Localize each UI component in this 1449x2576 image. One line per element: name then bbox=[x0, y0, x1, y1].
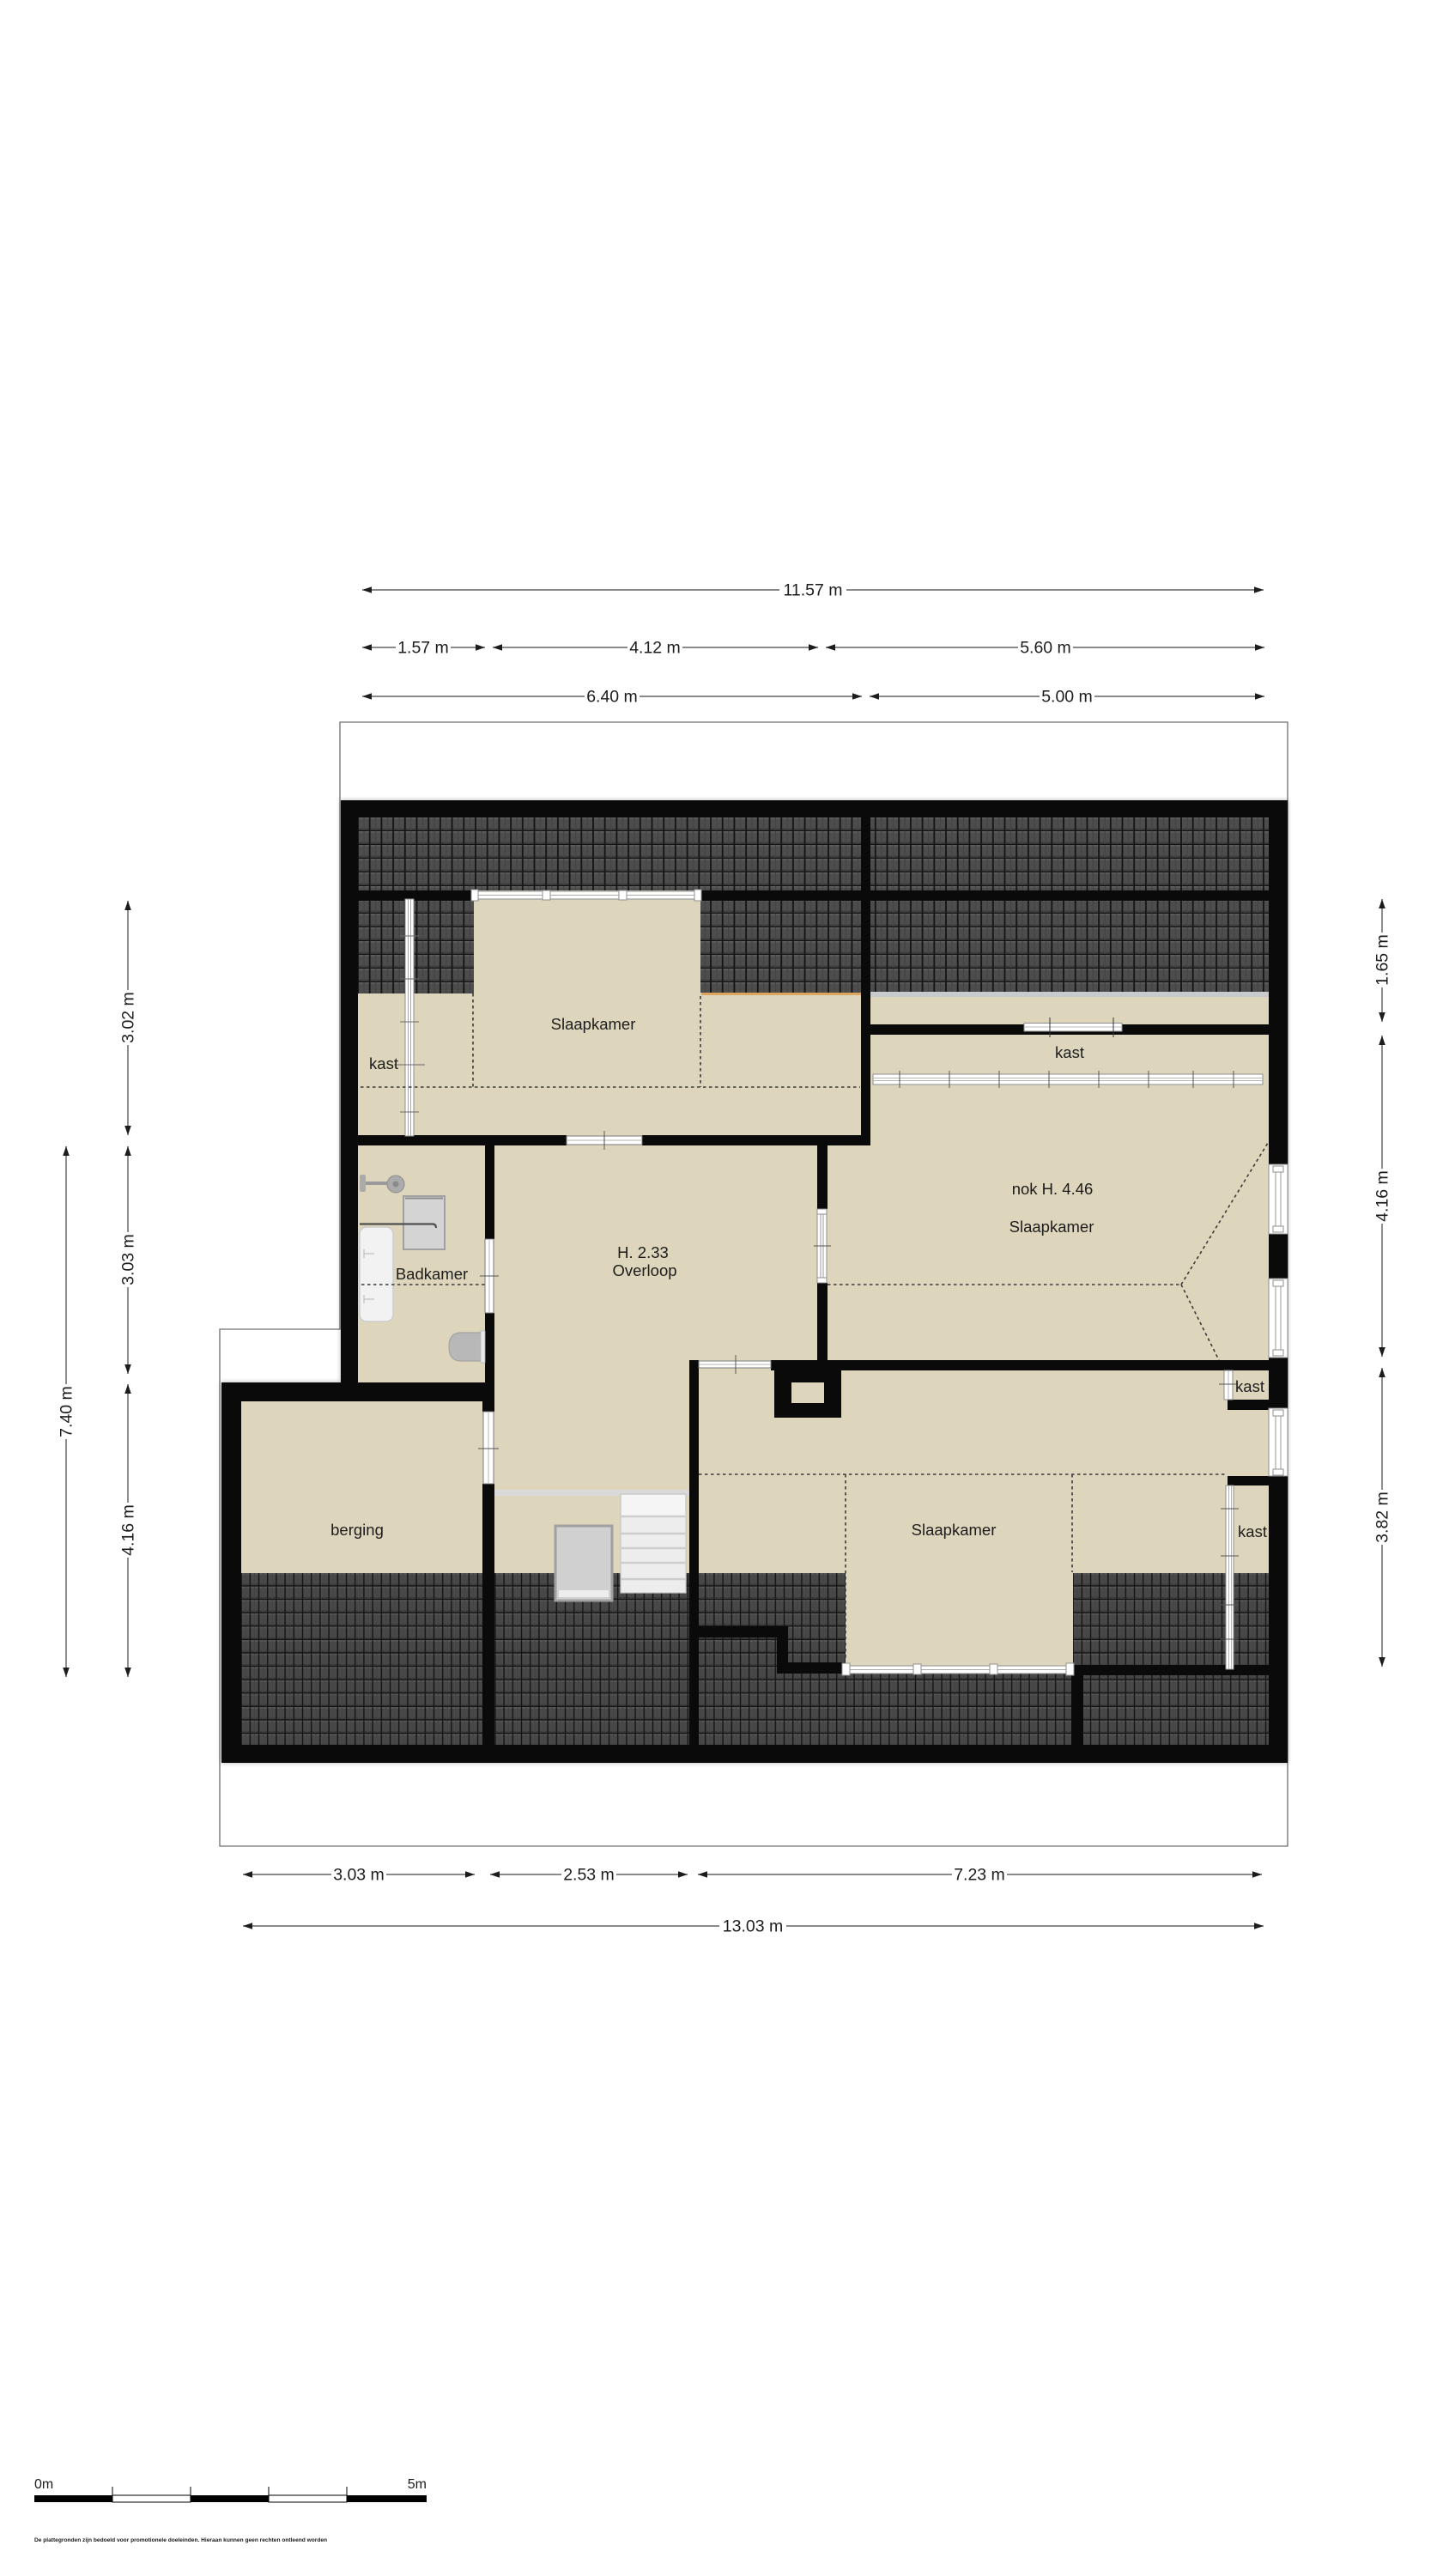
svg-text:De plattegronden zijn bedoeld: De plattegronden zijn bedoeld voor promo… bbox=[34, 2537, 327, 2543]
svg-text:5.60 m: 5.60 m bbox=[1020, 639, 1071, 658]
svg-text:H. 2.33: H. 2.33 bbox=[617, 1243, 669, 1261]
svg-text:Badkamer: Badkamer bbox=[396, 1265, 468, 1283]
svg-text:kast: kast bbox=[1238, 1522, 1267, 1540]
svg-text:4.12 m: 4.12 m bbox=[629, 639, 681, 658]
svg-text:5.00 m: 5.00 m bbox=[1041, 688, 1093, 707]
svg-text:13.03 m: 13.03 m bbox=[723, 1917, 783, 1936]
svg-text:kast: kast bbox=[1235, 1377, 1264, 1395]
svg-text:kast: kast bbox=[369, 1054, 398, 1072]
svg-text:1.57 m: 1.57 m bbox=[397, 639, 449, 658]
svg-text:Slaapkamer: Slaapkamer bbox=[551, 1015, 636, 1033]
svg-text:3.82 m: 3.82 m bbox=[1373, 1492, 1392, 1543]
svg-text:0m: 0m bbox=[34, 2477, 53, 2492]
svg-text:Slaapkamer: Slaapkamer bbox=[912, 1521, 997, 1539]
svg-text:5m: 5m bbox=[408, 2477, 427, 2492]
svg-text:7.40 m: 7.40 m bbox=[58, 1386, 76, 1437]
svg-text:Slaapkamer: Slaapkamer bbox=[1009, 1218, 1094, 1236]
svg-text:3.03 m: 3.03 m bbox=[119, 1234, 138, 1285]
svg-text:1.65 m: 1.65 m bbox=[1373, 934, 1392, 986]
svg-text:11.57 m: 11.57 m bbox=[783, 581, 842, 600]
svg-text:2.53 m: 2.53 m bbox=[563, 1866, 615, 1885]
svg-text:4.16 m: 4.16 m bbox=[119, 1504, 138, 1556]
svg-text:berging: berging bbox=[330, 1521, 384, 1539]
svg-text:6.40 m: 6.40 m bbox=[586, 688, 638, 707]
svg-text:3.02 m: 3.02 m bbox=[119, 992, 138, 1043]
svg-text:3.03 m: 3.03 m bbox=[333, 1866, 385, 1885]
svg-text:Overloop: Overloop bbox=[612, 1261, 676, 1279]
svg-text:7.23 m: 7.23 m bbox=[954, 1866, 1005, 1885]
svg-text:kast: kast bbox=[1055, 1043, 1084, 1061]
svg-text:nok H. 4.46: nok H. 4.46 bbox=[1012, 1180, 1094, 1198]
svg-text:4.16 m: 4.16 m bbox=[1373, 1170, 1392, 1222]
